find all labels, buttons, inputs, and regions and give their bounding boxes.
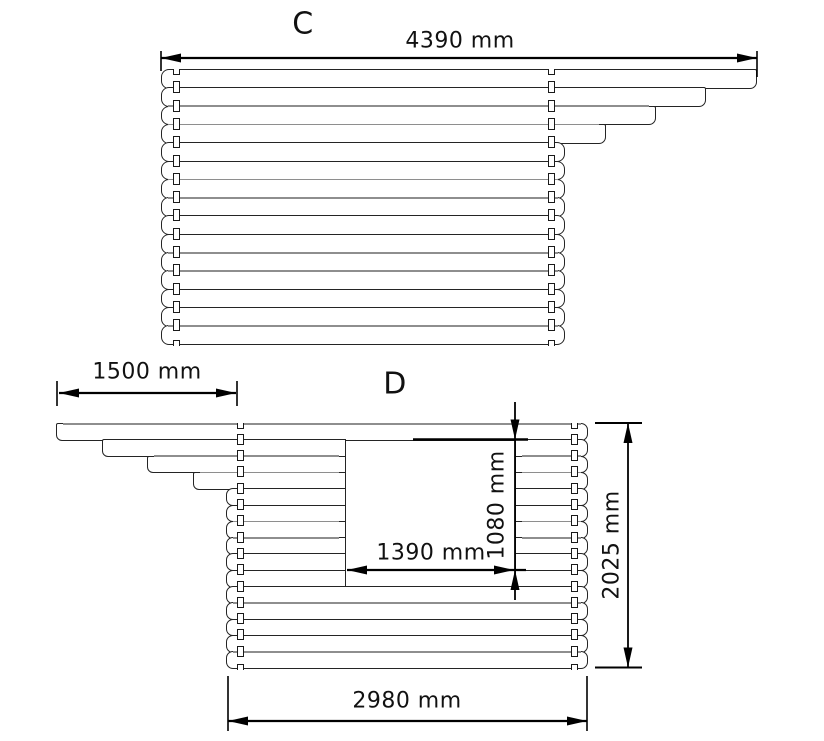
dimension-arrowhead — [228, 717, 248, 726]
dimension-arrowhead — [161, 54, 181, 63]
dimension-arrowhead — [216, 389, 236, 398]
dimension-arrowhead — [624, 648, 633, 668]
dimension-arrowhead — [737, 54, 757, 63]
dimension-arrowhead — [624, 423, 633, 443]
dimension-arrowhead — [511, 570, 520, 590]
dim-label-2980: 2980 mm — [352, 689, 461, 714]
technical-drawing-canvas: C 4390 mm D 1500 mm 1390 mm 1080 mm 2025… — [0, 0, 824, 741]
dim-label-2025: 2025 mm — [600, 490, 625, 599]
dim-label-1390: 1390 mm — [376, 541, 485, 566]
dim-label-1500: 1500 mm — [92, 360, 201, 385]
dimension-arrowhead — [494, 566, 514, 575]
dimension-arrowhead — [59, 389, 79, 398]
dimension-arrowhead — [347, 566, 367, 575]
dim-label-1080: 1080 mm — [485, 450, 510, 559]
dimension-arrowhead — [511, 420, 520, 440]
dim-label-4390: 4390 mm — [405, 29, 514, 54]
view-d-label: D — [383, 367, 407, 402]
dimension-arrowhead — [567, 717, 587, 726]
view-c-label: C — [292, 7, 313, 42]
